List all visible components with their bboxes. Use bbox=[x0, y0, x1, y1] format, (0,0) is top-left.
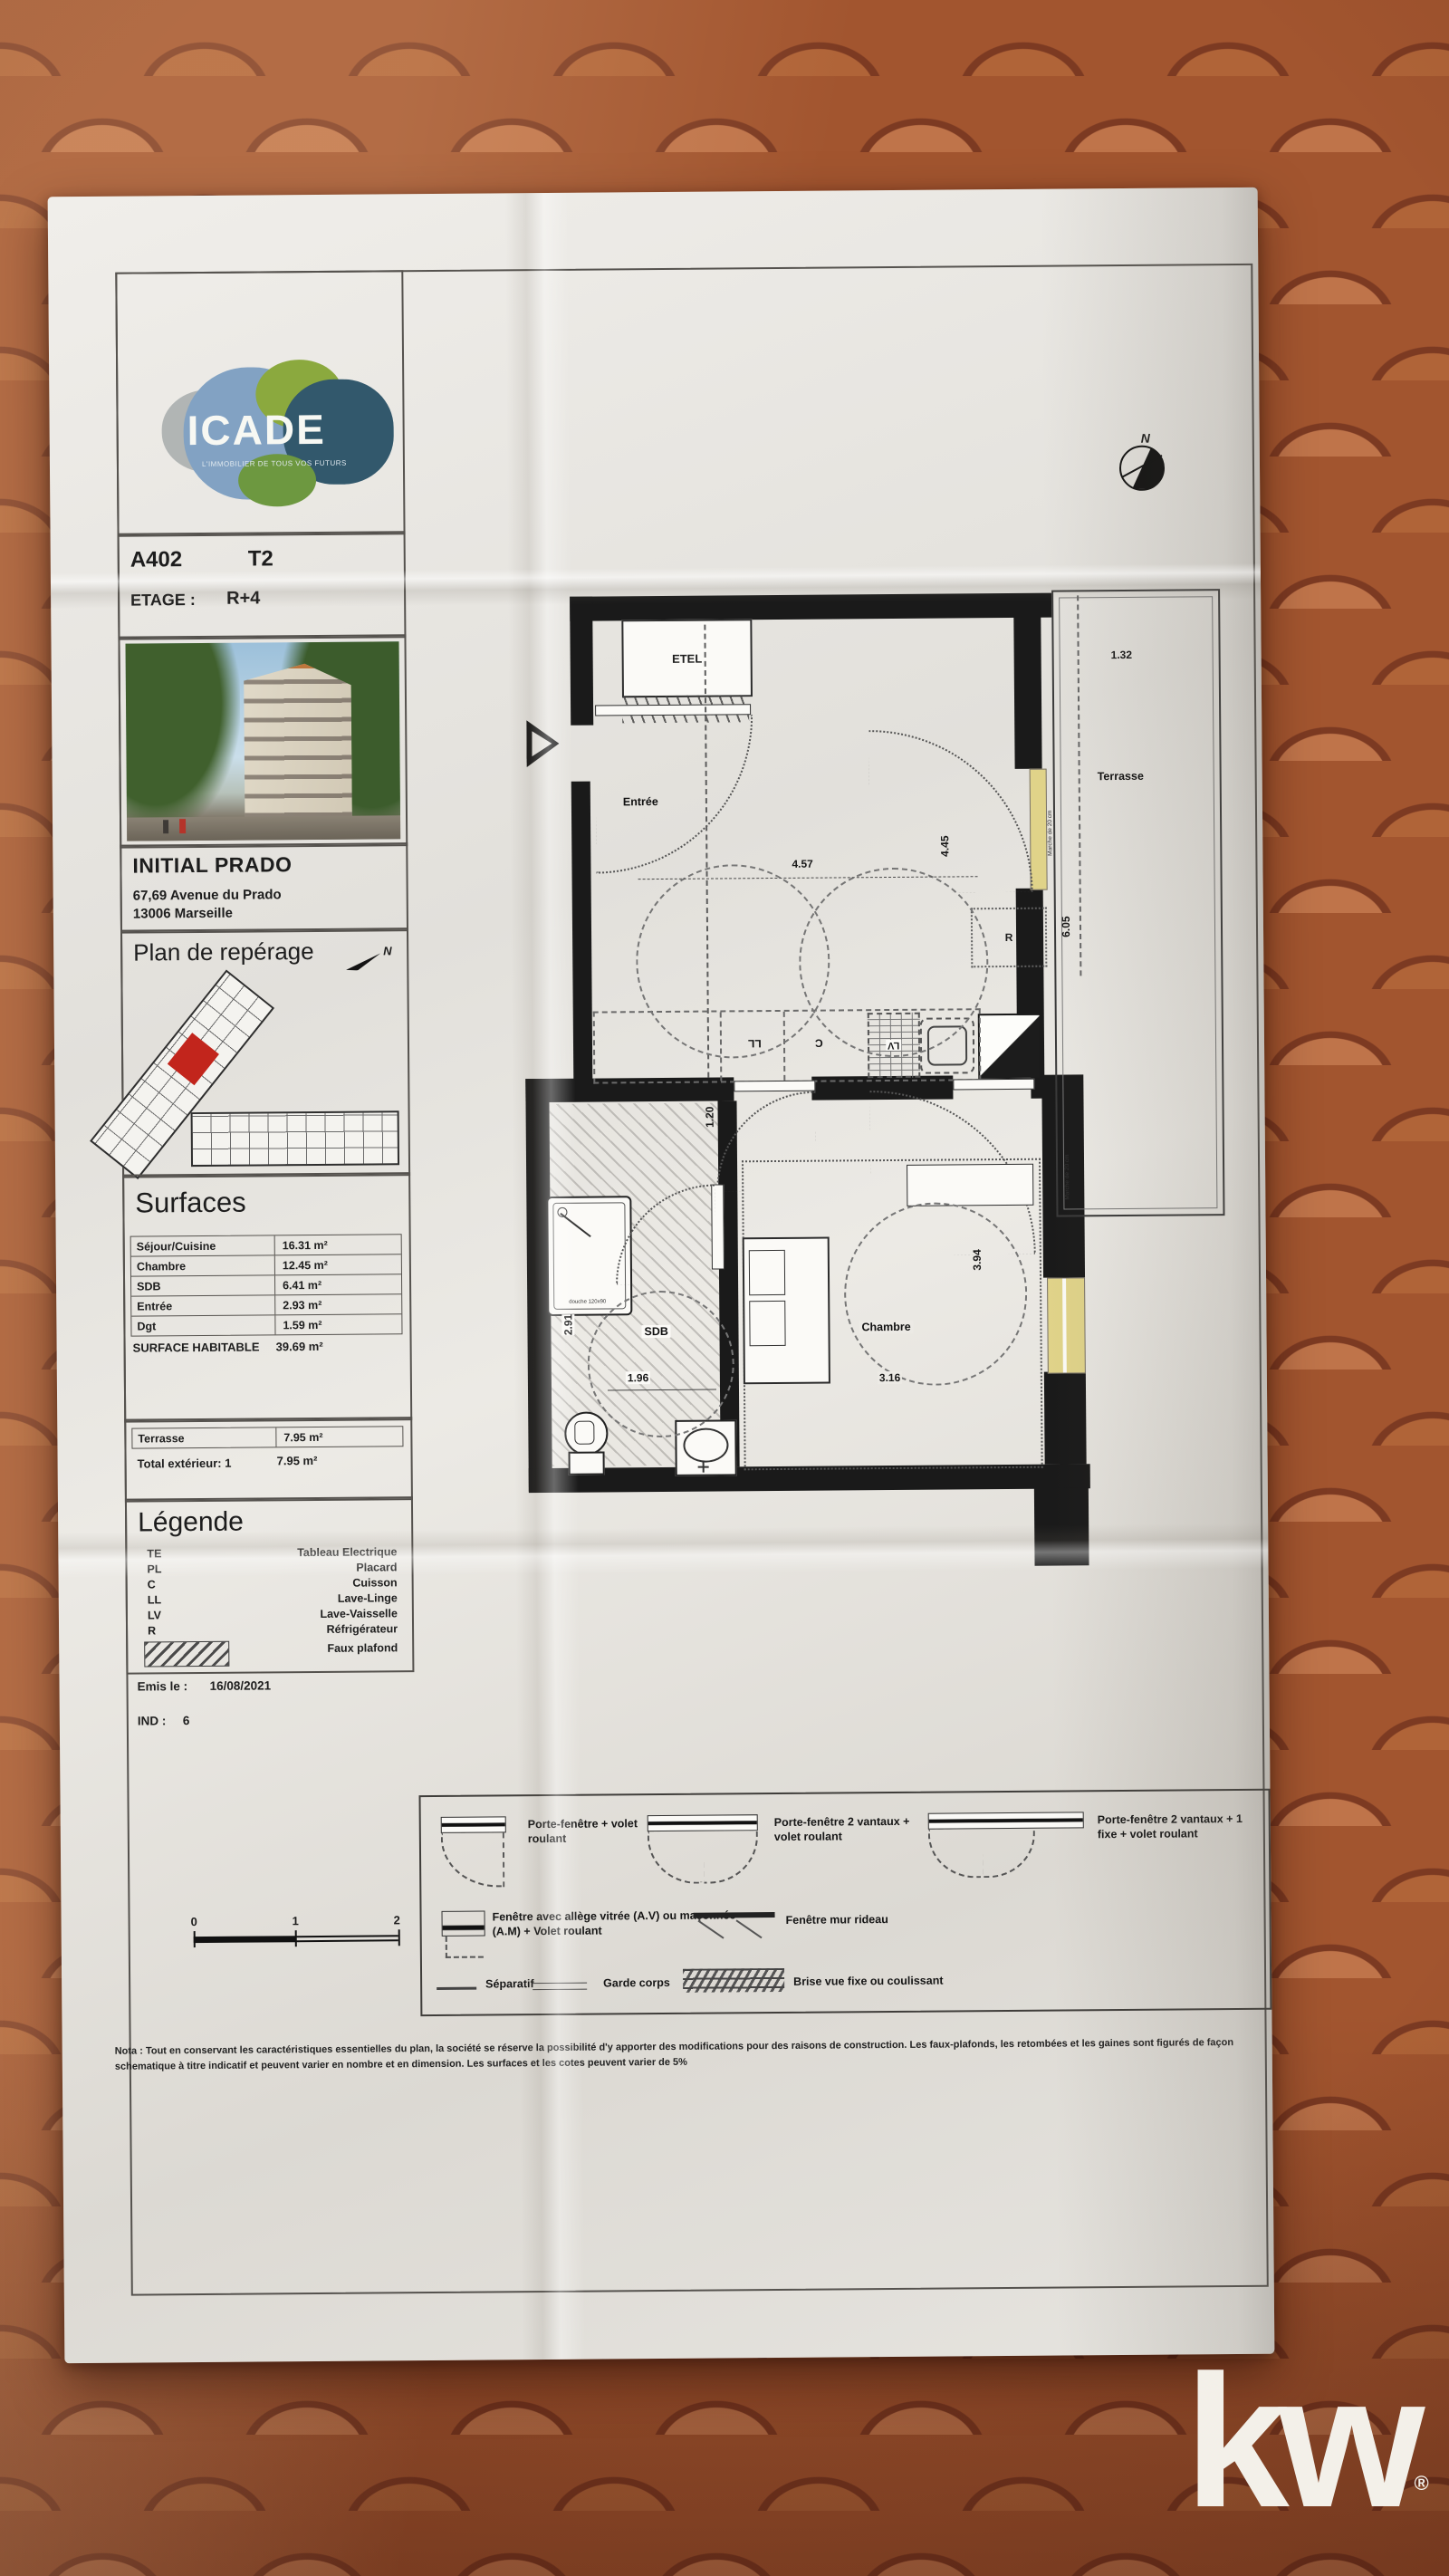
compass-rose-icon bbox=[1119, 446, 1165, 491]
wall-segment bbox=[570, 593, 1051, 621]
wall-segment bbox=[570, 597, 593, 726]
basin-bowl bbox=[683, 1427, 728, 1462]
turning-circle bbox=[635, 864, 830, 1060]
toilet-tank bbox=[569, 1451, 605, 1475]
door-swing-arc bbox=[595, 715, 753, 873]
unit-number: A402 bbox=[130, 547, 183, 572]
north-arrow-label: N bbox=[383, 944, 392, 957]
reperage-box: Plan de repérage N bbox=[120, 928, 410, 1177]
symbol-swing bbox=[441, 1832, 504, 1888]
wall-segment bbox=[1044, 1371, 1087, 1464]
symbols-legend-box: Porte-fenêtre + volet roulant Porte-fenê… bbox=[419, 1789, 1272, 2016]
symbol-label: Porte-fenêtre 2 vantaux + 1 fixe + volet… bbox=[1098, 1812, 1252, 1842]
kw-logo: kw® bbox=[1185, 2348, 1429, 2536]
dimension-label: 3.94 bbox=[971, 1249, 984, 1270]
floor-plan: ETEL Entrée LL C LV bbox=[484, 566, 1243, 1604]
building-photo-box bbox=[118, 634, 408, 848]
table-row: Séjour/Cuisine16.31 m² bbox=[131, 1235, 401, 1256]
reperage-title: Plan de repérage bbox=[133, 937, 314, 967]
symbol-swing bbox=[983, 1829, 1035, 1878]
wardrobe bbox=[907, 1164, 1033, 1206]
icade-logo-text: ICADE bbox=[187, 405, 326, 455]
symbol-label: Fenêtre mur rideau bbox=[786, 1913, 931, 1928]
toilet-inner bbox=[574, 1421, 594, 1445]
row-label: Séjour/Cuisine bbox=[131, 1239, 274, 1253]
table-row: Dgt1.59 m² bbox=[131, 1314, 401, 1335]
toilet-bowl bbox=[564, 1411, 608, 1455]
symbol-label: Porte-fenêtre + volet roulant bbox=[528, 1817, 646, 1846]
symbol-separatif bbox=[437, 1987, 476, 1990]
dimension-label: 1.96 bbox=[626, 1371, 650, 1384]
step-note: Marche de 20 cm bbox=[1047, 811, 1053, 856]
legend-code: LV bbox=[148, 1609, 161, 1621]
page-compass: N bbox=[1114, 431, 1169, 495]
row-label: Chambre bbox=[131, 1259, 274, 1273]
symbol-porte-fenetre-2v-fixe bbox=[928, 1812, 1084, 1829]
legend-label: Placard bbox=[356, 1561, 397, 1573]
turning-circle bbox=[587, 1290, 734, 1437]
bed bbox=[743, 1237, 830, 1385]
legend-label: Réfrigérateur bbox=[327, 1622, 398, 1636]
total-exterieur-label: Total extérieur: 1 bbox=[138, 1456, 232, 1471]
dimension-label: 2.91 bbox=[561, 1314, 574, 1335]
symbol-mur-rideau bbox=[694, 1912, 775, 1918]
legende-title: Légende bbox=[138, 1507, 244, 1539]
kw-logo-text: kw bbox=[1185, 2337, 1414, 2547]
room-label-etel: ETEL bbox=[672, 651, 702, 665]
surfaces-box: Surfaces Séjour/Cuisine16.31 m² Chambre1… bbox=[122, 1172, 412, 1422]
site-plan bbox=[88, 982, 416, 1170]
emitted-label: Emis le : bbox=[137, 1679, 187, 1693]
site-unit-highlight bbox=[168, 1033, 219, 1085]
wall-segment bbox=[1013, 617, 1041, 769]
table-row: Chambre12.45 m² bbox=[131, 1254, 401, 1276]
symbol-porte-fenetre bbox=[441, 1816, 506, 1833]
room-label-chambre: Chambre bbox=[859, 1321, 913, 1333]
legend-code: PL bbox=[147, 1562, 161, 1575]
symbol-brise-vue bbox=[683, 1968, 784, 1993]
etel-closet: ETEL bbox=[621, 619, 753, 697]
pedestrian-red bbox=[179, 819, 186, 833]
scale-bar: 0 1 2 bbox=[194, 1913, 402, 1956]
room-label-terrasse: Terrasse bbox=[1098, 770, 1144, 783]
shower-tray bbox=[552, 1202, 626, 1310]
legend-label: Lave-Linge bbox=[338, 1591, 398, 1605]
legend-label: Tableau Electrique bbox=[297, 1545, 397, 1559]
shower-note: douche 120x90 bbox=[569, 1299, 606, 1304]
unit-box: A402 T2 ETAGE : R+4 bbox=[118, 531, 407, 639]
tree-left bbox=[126, 641, 242, 834]
surfaces-table: Séjour/Cuisine16.31 m² Chambre12.45 m² S… bbox=[130, 1234, 403, 1336]
north-arrow-icon bbox=[345, 953, 383, 971]
scale-tick-label: 2 bbox=[394, 1913, 400, 1927]
unit-type: T2 bbox=[248, 546, 273, 572]
project-box: INITIAL PRADO 67,69 Avenue du Prado 1300… bbox=[120, 842, 408, 933]
turning-circle bbox=[843, 1202, 1028, 1387]
symbol-garde-corps bbox=[533, 1983, 587, 1990]
room-label-entree: Entrée bbox=[623, 795, 658, 808]
scale-bar-filled bbox=[194, 1936, 296, 1943]
site-wing-horizontal bbox=[191, 1110, 399, 1167]
door-leaf bbox=[734, 1081, 815, 1092]
pedestrian bbox=[163, 820, 168, 833]
row-value: 12.45 m² bbox=[274, 1254, 401, 1274]
appliance-label-fridge: R bbox=[1005, 931, 1013, 944]
index-label: IND : bbox=[138, 1714, 167, 1727]
terrace-inner-line bbox=[1059, 596, 1217, 1209]
legend-code: TE bbox=[147, 1547, 161, 1560]
row-value: 1.59 m² bbox=[274, 1314, 401, 1334]
issue-box: Emis le : 16/08/2021 IND : 6 bbox=[126, 1668, 411, 1764]
terrace-door-glazing bbox=[1030, 769, 1048, 890]
symbol-label: Séparatif bbox=[485, 1977, 534, 1992]
floorplan-sheet: ICADE L'IMMOBILIER DE TOUS VOS FUTURS A4… bbox=[48, 187, 1275, 2363]
total-exterieur-value: 7.95 m² bbox=[277, 1454, 318, 1467]
symbol-label: Garde corps bbox=[603, 1976, 670, 1991]
legend-code: LL bbox=[148, 1593, 161, 1606]
appliance-label-cooktop: C bbox=[815, 1037, 823, 1050]
scale-tick-label: 0 bbox=[191, 1915, 197, 1928]
row-value: 2.93 m² bbox=[274, 1294, 401, 1314]
glazing-line bbox=[1062, 1278, 1067, 1372]
row-value: 7.95 m² bbox=[275, 1427, 402, 1447]
row-label: Terrasse bbox=[132, 1431, 275, 1445]
dimension-label: 4.57 bbox=[792, 858, 812, 870]
table-row: Entrée2.93 m² bbox=[131, 1294, 401, 1316]
bedroom-window-glazing bbox=[1047, 1277, 1086, 1373]
legend-label: Lave-Vaisselle bbox=[320, 1607, 398, 1620]
row-value: 16.31 m² bbox=[274, 1235, 401, 1254]
scale-tick bbox=[398, 1929, 400, 1946]
exterior-box: Terrasse7.95 m² Total extérieur: 1 7.95 … bbox=[124, 1417, 413, 1502]
terrace-outline bbox=[1051, 589, 1224, 1216]
legend-code: R bbox=[148, 1624, 156, 1637]
row-label: Dgt bbox=[131, 1319, 274, 1332]
step-note: Marche de 20 cm bbox=[1064, 1154, 1070, 1199]
project-address-1: 67,69 Avenue du Prado bbox=[133, 887, 282, 903]
surfaces-title: Surfaces bbox=[135, 1187, 246, 1220]
legend-code: C bbox=[148, 1578, 156, 1591]
emitted-value: 16/08/2021 bbox=[209, 1678, 271, 1693]
symbol-label: Porte-fenêtre 2 vantaux + volet roulant bbox=[774, 1815, 910, 1844]
compass-n-label: N bbox=[1141, 431, 1150, 446]
symbol-porte-fenetre-2v bbox=[648, 1814, 758, 1831]
symbol-swing bbox=[928, 1829, 981, 1878]
project-address-2: 13006 Marseille bbox=[133, 906, 233, 922]
pillar bbox=[978, 1014, 1042, 1081]
table-row: Terrasse7.95 m² bbox=[132, 1427, 402, 1447]
logo-box: ICADE L'IMMOBILIER DE TOUS VOS FUTURS bbox=[115, 270, 405, 536]
registered-mark: ® bbox=[1414, 2472, 1428, 2494]
faucet-icon bbox=[698, 1466, 709, 1468]
scale-bar-open bbox=[296, 1935, 398, 1942]
row-value: 6.41 m² bbox=[274, 1274, 401, 1294]
symbol-swing bbox=[648, 1831, 702, 1884]
wall-segment bbox=[571, 782, 593, 1081]
symbol-swing bbox=[704, 1831, 758, 1883]
faux-plafond-hatch-swatch bbox=[144, 1641, 229, 1668]
floor-value: R+4 bbox=[226, 588, 260, 609]
symbol-swing bbox=[446, 1937, 484, 1958]
photo-of-floorplan: ICADE L'IMMOBILIER DE TOUS VOS FUTURS A4… bbox=[0, 0, 1449, 2576]
pillow bbox=[749, 1250, 785, 1295]
table-row: SDB6.41 m² bbox=[131, 1274, 401, 1296]
pillow bbox=[749, 1301, 785, 1346]
project-name: INITIAL PRADO bbox=[132, 852, 292, 878]
floor-label: ETAGE : bbox=[130, 591, 196, 610]
legend-label: Faux plafond bbox=[327, 1641, 398, 1655]
symbol-fenetre-allege bbox=[442, 1911, 485, 1937]
building-photo bbox=[126, 641, 401, 841]
dimension-label: 3.16 bbox=[878, 1371, 902, 1384]
legend-label: Cuisson bbox=[352, 1576, 397, 1589]
dimension-label: 6.05 bbox=[1060, 916, 1072, 937]
surface-habitable-label: SURFACE HABITABLE bbox=[133, 1340, 260, 1354]
row-label: SDB bbox=[131, 1279, 274, 1293]
scale-tick-label: 1 bbox=[293, 1914, 299, 1927]
door-swing-arc bbox=[868, 729, 1032, 893]
dimension-label: 1.32 bbox=[1111, 649, 1132, 661]
door-leaf bbox=[953, 1079, 1034, 1091]
wall-segment bbox=[1034, 1487, 1089, 1565]
room-label-sdb: SDB bbox=[641, 1325, 671, 1338]
legende-box: Légende TETableau Electrique PLPlacard C… bbox=[125, 1496, 415, 1674]
icade-logo-tagline: L'IMMOBILIER DE TOUS VOS FUTURS bbox=[202, 459, 347, 468]
surface-habitable-value: 39.69 m² bbox=[276, 1340, 323, 1353]
row-label: Entrée bbox=[131, 1299, 274, 1312]
building-render bbox=[224, 660, 369, 828]
symbol-label: Brise vue fixe ou coulissant bbox=[793, 1975, 943, 1990]
exterior-table: Terrasse7.95 m² bbox=[131, 1426, 403, 1448]
dimension-label: 4.45 bbox=[938, 835, 951, 856]
index-value: 6 bbox=[183, 1714, 190, 1727]
